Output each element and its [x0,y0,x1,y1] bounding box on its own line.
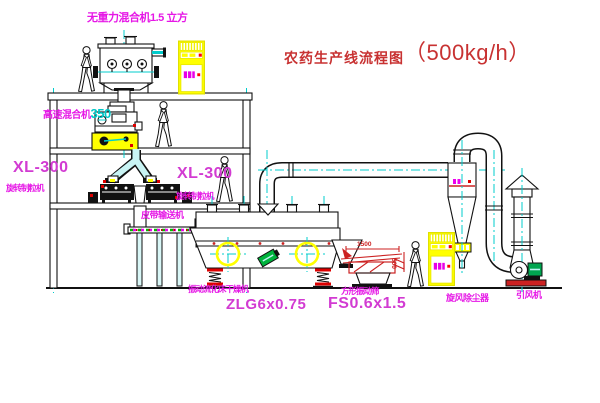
person-icon [79,47,95,92]
induced-draft-fan-drawing [506,262,546,287]
person-icon [156,102,172,147]
fluid-bed-dryer-drawing [190,196,362,288]
granulator-left-drawing [88,176,134,203]
granulator-right-name: 旋转制粒机 [176,192,214,201]
pesticide-line-drawing: 无重力混合机1.5 立方 农药生产线流程图（500kg/h） 高速混合机350 … [0,0,600,403]
sieve-width-dimension: 1500 [357,242,371,249]
control-cabinet [429,233,455,286]
control-cabinet [179,41,205,94]
sieve-height-dimension: 500 [390,258,397,269]
title-capacity: （500kg/h） [404,40,531,65]
induced-draft-fan-label: 引风机 [516,291,542,300]
cyclone-label: 旋风除尘器 [446,294,489,303]
granulator-left-name: 旋转制粒机 [6,184,44,193]
diagram-title: 农药生产线流程图（500kg/h） [284,42,531,64]
fluid-bed-dryer-model: ZLG6x0.75 [226,297,306,312]
cyclone-drawing [448,140,517,274]
person-icon [408,242,424,287]
cyclone-level-marks [453,179,456,184]
belt-conveyor-label: 皮带输送机 [141,211,184,220]
fluid-bed-dryer-label: 振动流化床干燥机 [188,285,248,294]
high-speed-mixer-model: 350 [91,106,111,121]
gravity-mixer-label: 无重力混合机1.5 立方 [87,13,187,24]
vibrating-sieve-model: FS0.6x1.5 [328,296,406,312]
high-speed-mixer-label: 高速混合机350 [43,107,111,121]
granulator-right-model: XL-300 [177,166,232,182]
granulator-left-model: XL-300 [13,160,68,176]
title-text: 农药生产线流程图 [284,50,404,66]
granulator-discharge-funnel [134,186,146,203]
spring-mount [313,269,333,288]
